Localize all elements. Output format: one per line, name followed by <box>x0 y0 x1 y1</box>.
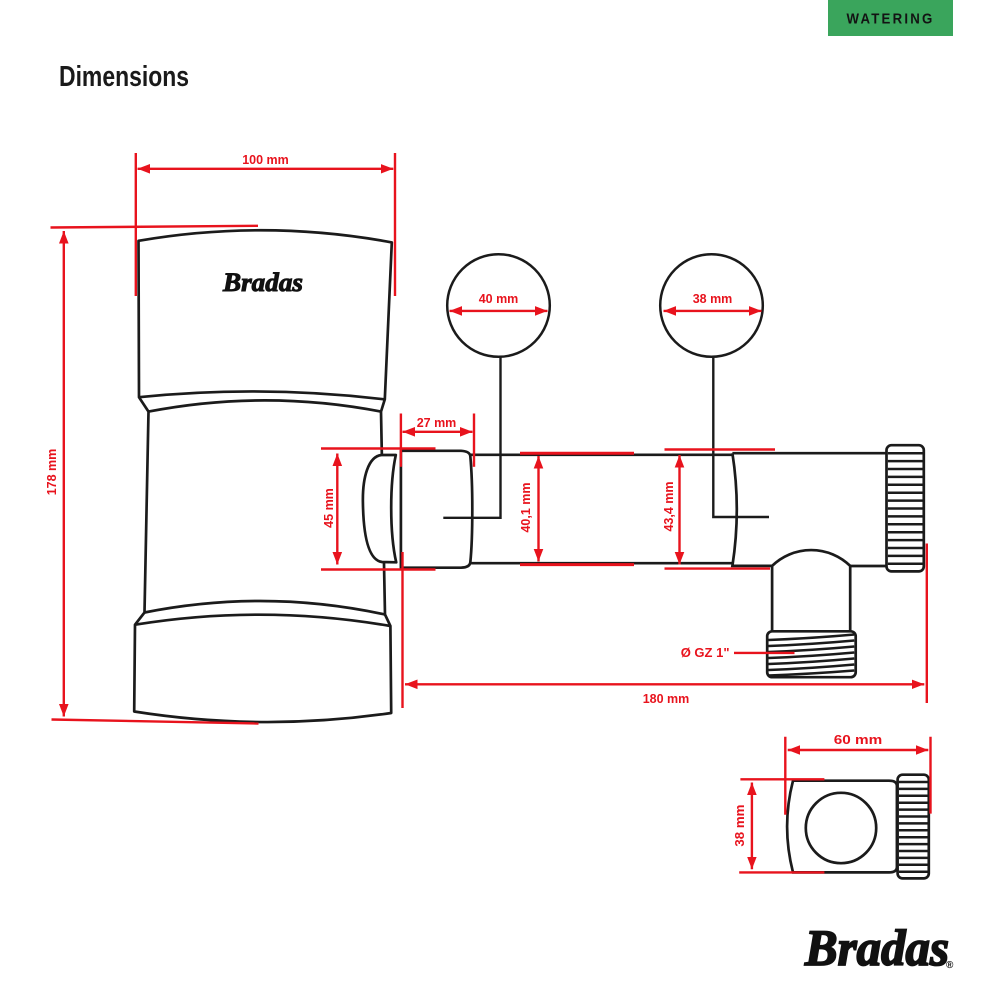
svg-text:178 mm: 178 mm <box>45 449 59 496</box>
svg-text:®: ® <box>946 960 954 971</box>
svg-text:100 mm: 100 mm <box>242 153 289 167</box>
svg-text:38 mm: 38 mm <box>693 292 733 306</box>
svg-text:27 mm: 27 mm <box>417 416 457 430</box>
svg-text:Bradas: Bradas <box>222 268 303 297</box>
svg-text:43,4 mm: 43,4 mm <box>662 481 676 531</box>
svg-text:Ø GZ 1": Ø GZ 1" <box>681 645 730 660</box>
svg-text:60 mm: 60 mm <box>834 733 883 747</box>
svg-text:38 mm: 38 mm <box>733 805 747 847</box>
svg-text:Dimensions: Dimensions <box>59 61 189 93</box>
svg-text:45 mm: 45 mm <box>322 488 336 528</box>
svg-text:40 mm: 40 mm <box>479 292 519 306</box>
svg-text:Bradas: Bradas <box>804 921 949 977</box>
svg-text:40,1 mm: 40,1 mm <box>519 482 533 532</box>
svg-text:WATERING: WATERING <box>847 11 935 28</box>
svg-text:180 mm: 180 mm <box>643 692 690 706</box>
